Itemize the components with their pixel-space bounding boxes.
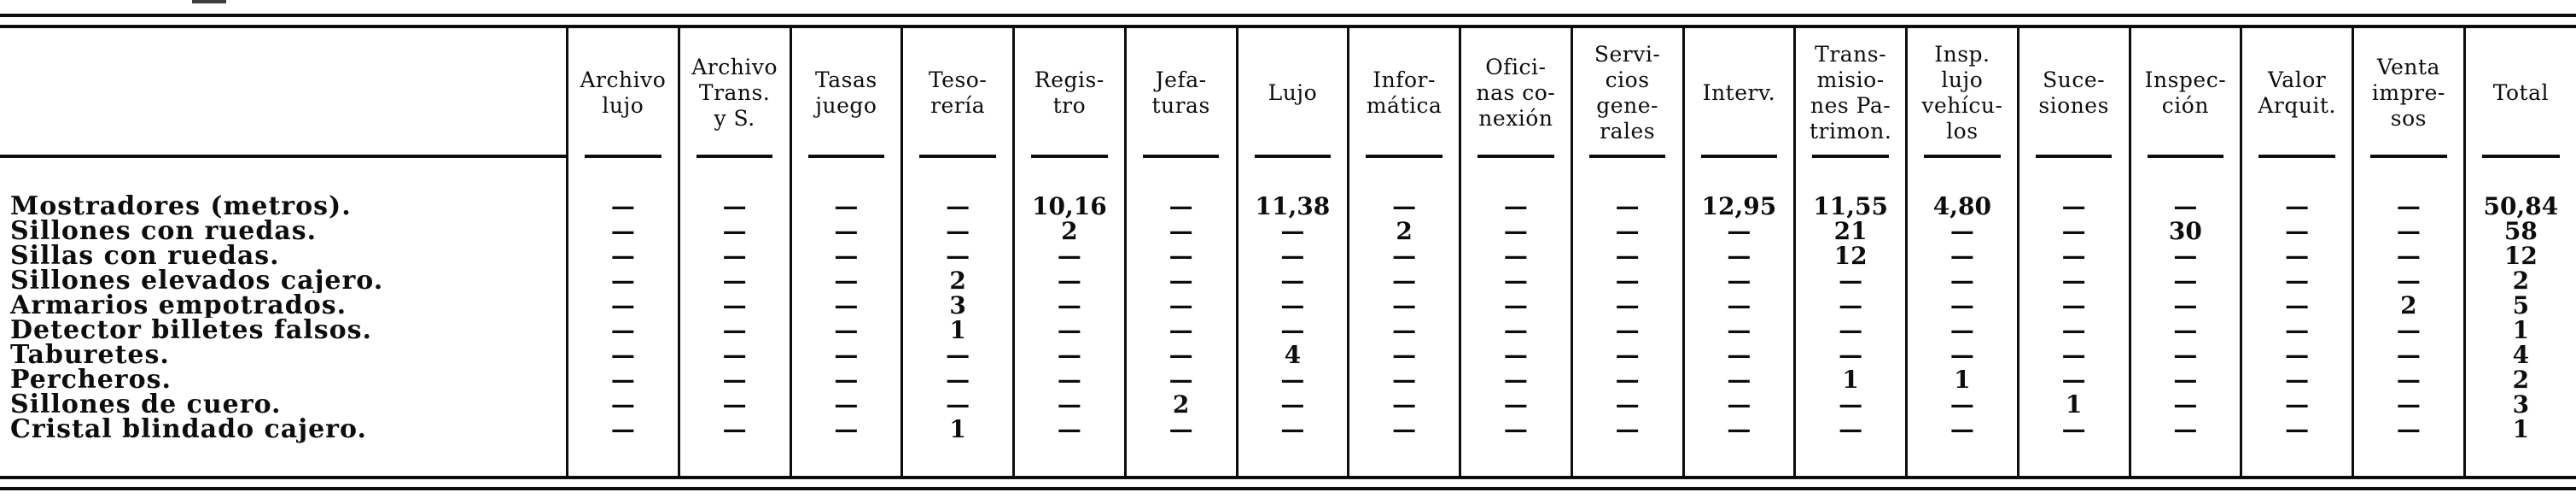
cell-oficinas-conexion: — <box>1460 367 1572 392</box>
cell-lujo: — <box>1237 219 1349 243</box>
cell-oficinas-conexion: — <box>1460 268 1572 293</box>
cell-servicios-generales: — <box>1571 293 1683 318</box>
cell-venta-impresos: — <box>2353 343 2465 367</box>
cell-tesoreria: — <box>902 367 1014 392</box>
cell-total: 5 <box>2464 293 2576 318</box>
cell-tasas-juego: — <box>790 343 902 367</box>
cell-valor-arquit: — <box>2241 268 2353 293</box>
cell-archivo-trans-y-s: — <box>679 243 790 268</box>
table-header: Archivo lujoArchivo Trans. y S.Tasas jue… <box>0 28 2576 158</box>
cell-transmisiones-patrimon: 11,55 <box>1795 158 1907 219</box>
cell-informatica: — <box>1349 318 1460 343</box>
cell-sucesiones: — <box>2018 318 2130 343</box>
cell-registro: 2 <box>1014 219 1126 243</box>
cell-interv: — <box>1683 293 1795 318</box>
table-body: Mostradores (metros).————10,16—11,38———1… <box>0 158 2576 479</box>
cell-archivo-lujo: — <box>568 243 679 268</box>
cell-servicios-generales: — <box>1571 158 1683 219</box>
cell-transmisiones-patrimon: — <box>1795 417 1907 479</box>
cell-tesoreria: 2 <box>902 268 1014 293</box>
cell-tasas-juego: — <box>790 219 902 243</box>
cell-sucesiones: — <box>2018 343 2130 367</box>
cell-valor-arquit: — <box>2241 158 2353 219</box>
cell-informatica: — <box>1349 343 1460 367</box>
cell-interv: — <box>1683 367 1795 392</box>
cell-archivo-trans-y-s: — <box>679 268 790 293</box>
cell-jefaturas: — <box>1125 343 1237 367</box>
row-label: Sillones de cuero. <box>0 392 568 417</box>
cell-interv: — <box>1683 417 1795 479</box>
cell-servicios-generales: — <box>1571 367 1683 392</box>
table-top-rule <box>0 14 2576 28</box>
table-row: Sillones de cuero.—————2———————1———3 <box>0 392 2576 417</box>
row-label: Mostradores (metros). <box>0 158 568 219</box>
cell-total: 1 <box>2464 417 2576 479</box>
cell-tesoreria: — <box>902 392 1014 417</box>
cell-venta-impresos: — <box>2353 158 2465 219</box>
cell-oficinas-conexion: — <box>1460 219 1572 243</box>
column-header-inspeccion: Inspec- ción <box>2130 28 2241 158</box>
cell-total: 12 <box>2464 243 2576 268</box>
cell-servicios-generales: — <box>1571 343 1683 367</box>
cell-jefaturas: — <box>1125 367 1237 392</box>
cell-total: 58 <box>2464 219 2576 243</box>
cell-inspeccion: — <box>2130 318 2241 343</box>
row-label-header <box>0 28 568 158</box>
cell-inspeccion: — <box>2130 268 2241 293</box>
cell-inspeccion: 30 <box>2130 219 2241 243</box>
cell-venta-impresos: — <box>2353 367 2465 392</box>
cell-inspeccion: — <box>2130 243 2241 268</box>
column-header-valor-arquit: Valor Arquit. <box>2241 28 2353 158</box>
cell-valor-arquit: — <box>2241 219 2353 243</box>
row-label: Cristal blindado cajero. <box>0 417 568 479</box>
cell-valor-arquit: — <box>2241 367 2353 392</box>
cell-archivo-trans-y-s: — <box>679 343 790 367</box>
table-row: Mostradores (metros).————10,16—11,38———1… <box>0 158 2576 219</box>
column-header-informatica: Infor- mática <box>1349 28 1460 158</box>
cell-total: 50,84 <box>2464 158 2576 219</box>
cell-archivo-lujo: — <box>568 158 679 219</box>
cell-venta-impresos: — <box>2353 268 2465 293</box>
cell-archivo-trans-y-s: — <box>679 417 790 479</box>
cell-informatica: — <box>1349 158 1460 219</box>
cell-total: 3 <box>2464 392 2576 417</box>
table-row: Armarios empotrados.———3————————————25 <box>0 293 2576 318</box>
cell-tasas-juego: — <box>790 293 902 318</box>
cell-informatica: — <box>1349 392 1460 417</box>
cell-transmisiones-patrimon: — <box>1795 318 1907 343</box>
cell-inspeccion: — <box>2130 293 2241 318</box>
cell-registro: — <box>1014 392 1126 417</box>
cell-sucesiones: 1 <box>2018 392 2130 417</box>
cell-insp-lujo-vehiculos: — <box>1907 293 2019 318</box>
cell-registro: — <box>1014 417 1126 479</box>
cell-inspeccion: — <box>2130 392 2241 417</box>
cell-transmisiones-patrimon: 1 <box>1795 367 1907 392</box>
cell-archivo-lujo: — <box>568 293 679 318</box>
row-label: Sillones elevados cajero. <box>0 268 568 293</box>
table-row: Sillas con ruedas.———————————12—————12 <box>0 243 2576 268</box>
cell-registro: — <box>1014 318 1126 343</box>
table-row: Taburetes.——————4——————————4 <box>0 343 2576 367</box>
cell-total: 2 <box>2464 268 2576 293</box>
cell-lujo: 11,38 <box>1237 158 1349 219</box>
cell-sucesiones: — <box>2018 268 2130 293</box>
cell-jefaturas: — <box>1125 243 1237 268</box>
cell-archivo-lujo: — <box>568 268 679 293</box>
cell-oficinas-conexion: — <box>1460 318 1572 343</box>
column-header-archivo-trans-y-s: Archivo Trans. y S. <box>679 28 790 158</box>
cell-registro: — <box>1014 293 1126 318</box>
row-label: Taburetes. <box>0 343 568 367</box>
cell-insp-lujo-vehiculos: — <box>1907 219 2019 243</box>
cell-archivo-lujo: — <box>568 367 679 392</box>
cell-lujo: — <box>1237 268 1349 293</box>
cell-jefaturas: — <box>1125 417 1237 479</box>
cell-archivo-trans-y-s: — <box>679 158 790 219</box>
column-header-total: Total <box>2464 28 2576 158</box>
cell-oficinas-conexion: — <box>1460 158 1572 219</box>
cell-valor-arquit: — <box>2241 293 2353 318</box>
cell-insp-lujo-vehiculos: 1 <box>1907 367 2019 392</box>
cell-jefaturas: — <box>1125 293 1237 318</box>
cell-interv: — <box>1683 343 1795 367</box>
cell-venta-impresos: 2 <box>2353 293 2465 318</box>
cell-transmisiones-patrimon: 21 <box>1795 219 1907 243</box>
column-header-jefaturas: Jefa- turas <box>1125 28 1237 158</box>
scanned-document-page: Archivo lujoArchivo Trans. y S.Tasas jue… <box>0 0 2576 504</box>
cell-sucesiones: — <box>2018 367 2130 392</box>
cell-interv: — <box>1683 268 1795 293</box>
cell-registro: — <box>1014 343 1126 367</box>
cell-informatica: — <box>1349 268 1460 293</box>
cell-informatica: — <box>1349 417 1460 479</box>
cell-sucesiones: — <box>2018 158 2130 219</box>
cell-lujo: — <box>1237 367 1349 392</box>
cell-registro: — <box>1014 243 1126 268</box>
cell-jefaturas: — <box>1125 268 1237 293</box>
cell-tasas-juego: — <box>790 318 902 343</box>
row-label: Armarios empotrados. <box>0 293 568 318</box>
cell-total: 2 <box>2464 367 2576 392</box>
cell-sucesiones: — <box>2018 219 2130 243</box>
cell-servicios-generales: — <box>1571 392 1683 417</box>
cell-servicios-generales: — <box>1571 219 1683 243</box>
cell-transmisiones-patrimon: — <box>1795 343 1907 367</box>
cell-tasas-juego: — <box>790 417 902 479</box>
cell-insp-lujo-vehiculos: — <box>1907 417 2019 479</box>
cell-sucesiones: — <box>2018 243 2130 268</box>
cell-jefaturas: 2 <box>1125 392 1237 417</box>
cell-interv: 12,95 <box>1683 158 1795 219</box>
column-header-venta-impresos: Venta impre- sos <box>2353 28 2465 158</box>
column-header-sucesiones: Suce- siones <box>2018 28 2130 158</box>
cell-venta-impresos: — <box>2353 219 2465 243</box>
cell-transmisiones-patrimon: 12 <box>1795 243 1907 268</box>
cell-lujo: — <box>1237 318 1349 343</box>
cell-tesoreria: — <box>902 219 1014 243</box>
cell-valor-arquit: — <box>2241 392 2353 417</box>
cell-tasas-juego: — <box>790 392 902 417</box>
column-header-interv: Interv. <box>1683 28 1795 158</box>
column-header-oficinas-conexion: Ofici- nas co- nexión <box>1460 28 1572 158</box>
cell-tesoreria: 3 <box>902 293 1014 318</box>
cell-venta-impresos: — <box>2353 318 2465 343</box>
cell-inspeccion: — <box>2130 158 2241 219</box>
cell-archivo-trans-y-s: — <box>679 392 790 417</box>
cell-sucesiones: — <box>2018 417 2130 479</box>
cell-transmisiones-patrimon: — <box>1795 268 1907 293</box>
cell-informatica: — <box>1349 293 1460 318</box>
cell-archivo-trans-y-s: — <box>679 367 790 392</box>
cell-valor-arquit: — <box>2241 318 2353 343</box>
cell-tasas-juego: — <box>790 158 902 219</box>
column-header-servicios-generales: Servi- cios gene- rales <box>1571 28 1683 158</box>
cell-transmisiones-patrimon: — <box>1795 293 1907 318</box>
cell-tesoreria: — <box>902 343 1014 367</box>
cell-insp-lujo-vehiculos: — <box>1907 343 2019 367</box>
table-row: Cristal blindado cajero.———1————————————… <box>0 417 2576 479</box>
row-label: Percheros. <box>0 367 568 392</box>
cell-insp-lujo-vehiculos: — <box>1907 268 2019 293</box>
cell-jefaturas: — <box>1125 318 1237 343</box>
cell-archivo-lujo: — <box>568 417 679 479</box>
cell-informatica: — <box>1349 367 1460 392</box>
cell-oficinas-conexion: — <box>1460 417 1572 479</box>
column-header-insp-lujo-vehiculos: Insp. lujo vehícu- los <box>1907 28 2019 158</box>
cell-lujo: — <box>1237 243 1349 268</box>
cell-insp-lujo-vehiculos: — <box>1907 318 2019 343</box>
cell-lujo: — <box>1237 417 1349 479</box>
header-row: Archivo lujoArchivo Trans. y S.Tasas jue… <box>0 28 2576 158</box>
cell-inspeccion: — <box>2130 417 2241 479</box>
cell-archivo-trans-y-s: — <box>679 293 790 318</box>
column-header-tesoreria: Teso- rería <box>902 28 1014 158</box>
cell-archivo-lujo: — <box>568 219 679 243</box>
cell-total: 4 <box>2464 343 2576 367</box>
cell-insp-lujo-vehiculos: — <box>1907 392 2019 417</box>
cell-oficinas-conexion: — <box>1460 343 1572 367</box>
cell-archivo-lujo: — <box>568 318 679 343</box>
cell-informatica: 2 <box>1349 219 1460 243</box>
cell-oficinas-conexion: — <box>1460 243 1572 268</box>
cell-servicios-generales: — <box>1571 268 1683 293</box>
cell-tasas-juego: — <box>790 268 902 293</box>
scan-artifact-mark <box>192 0 226 3</box>
cell-tasas-juego: — <box>790 367 902 392</box>
table-row: Sillones elevados cajero.———2———————————… <box>0 268 2576 293</box>
cell-inspeccion: — <box>2130 343 2241 367</box>
cell-lujo: 4 <box>1237 343 1349 367</box>
cell-interv: — <box>1683 219 1795 243</box>
cell-oficinas-conexion: — <box>1460 293 1572 318</box>
cell-lujo: — <box>1237 392 1349 417</box>
cell-venta-impresos: — <box>2353 417 2465 479</box>
cell-valor-arquit: — <box>2241 243 2353 268</box>
cell-jefaturas: — <box>1125 158 1237 219</box>
row-label: Sillas con ruedas. <box>0 243 568 268</box>
cell-archivo-trans-y-s: — <box>679 219 790 243</box>
column-header-tasas-juego: Tasas juego <box>790 28 902 158</box>
cell-interv: — <box>1683 318 1795 343</box>
cell-registro: — <box>1014 367 1126 392</box>
cell-transmisiones-patrimon: — <box>1795 392 1907 417</box>
cell-servicios-generales: — <box>1571 417 1683 479</box>
cell-valor-arquit: — <box>2241 343 2353 367</box>
cell-servicios-generales: — <box>1571 243 1683 268</box>
cell-insp-lujo-vehiculos: — <box>1907 243 2019 268</box>
cell-registro: 10,16 <box>1014 158 1126 219</box>
cell-interv: — <box>1683 243 1795 268</box>
table-bottom-rule <box>0 476 2576 490</box>
cell-tesoreria: 1 <box>902 318 1014 343</box>
table-row: Percheros.———————————11————2 <box>0 367 2576 392</box>
inventory-table: Archivo lujoArchivo Trans. y S.Tasas jue… <box>0 28 2576 479</box>
cell-jefaturas: — <box>1125 219 1237 243</box>
cell-registro: — <box>1014 268 1126 293</box>
cell-oficinas-conexion: — <box>1460 392 1572 417</box>
cell-venta-impresos: — <box>2353 243 2465 268</box>
cell-insp-lujo-vehiculos: 4,80 <box>1907 158 2019 219</box>
row-label: Sillones con ruedas. <box>0 219 568 243</box>
column-header-transmisiones-patrimon: Trans- misio- nes Pa- trimon. <box>1795 28 1907 158</box>
cell-tesoreria: — <box>902 158 1014 219</box>
cell-tesoreria: — <box>902 243 1014 268</box>
cell-tesoreria: 1 <box>902 417 1014 479</box>
cell-archivo-lujo: — <box>568 343 679 367</box>
column-header-lujo: Lujo <box>1237 28 1349 158</box>
cell-archivo-lujo: — <box>568 392 679 417</box>
row-label: Detector billetes falsos. <box>0 318 568 343</box>
cell-inspeccion: — <box>2130 367 2241 392</box>
cell-venta-impresos: — <box>2353 392 2465 417</box>
cell-total: 1 <box>2464 318 2576 343</box>
cell-tasas-juego: — <box>790 243 902 268</box>
cell-valor-arquit: — <box>2241 417 2353 479</box>
cell-servicios-generales: — <box>1571 318 1683 343</box>
column-header-registro: Regis- tro <box>1014 28 1126 158</box>
cell-archivo-trans-y-s: — <box>679 318 790 343</box>
cell-informatica: — <box>1349 243 1460 268</box>
cell-interv: — <box>1683 392 1795 417</box>
table-row: Sillones con ruedas.————2——2———21——30——5… <box>0 219 2576 243</box>
cell-sucesiones: — <box>2018 293 2130 318</box>
table-row: Detector billetes falsos.———1———————————… <box>0 318 2576 343</box>
cell-lujo: — <box>1237 293 1349 318</box>
column-header-archivo-lujo: Archivo lujo <box>568 28 679 158</box>
